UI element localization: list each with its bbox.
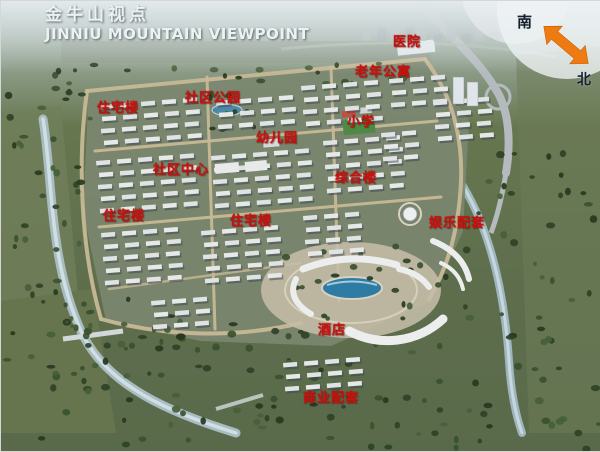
map-label-senior-apartments: 老年公寓 <box>355 61 411 80</box>
aerial-masterplan-view: 金牛山视点 JINNIU MOUNTAIN VIEWPOINT 南 北 医院老年… <box>0 0 600 452</box>
map-label-hospital: 医院 <box>393 31 421 50</box>
map-label-commercial-facilities: 商业配套 <box>303 387 359 406</box>
map-label-mixed-use-building: 综合楼 <box>335 167 377 186</box>
map-label-kindergarten: 幼儿园 <box>256 127 298 146</box>
map-label-primary-school: 小学 <box>347 111 375 130</box>
map-label-entertainment-facilities: 娱乐配套 <box>429 212 485 231</box>
map-label-hotel: 酒店 <box>318 319 346 338</box>
map-label-residential-1: 住宅楼 <box>97 97 139 116</box>
map-label-residential-2: 住宅楼 <box>103 205 145 224</box>
map-label-community-center: 社区中心 <box>153 159 209 178</box>
landscape-scenery <box>1 1 600 451</box>
compass-north-label: 北 <box>577 69 591 89</box>
map-label-community-park: 社区公园 <box>185 87 241 106</box>
aerial-rendering <box>1 1 600 451</box>
compass-south-label: 南 <box>517 11 532 32</box>
map-label-residential-3: 住宅楼 <box>230 210 272 229</box>
